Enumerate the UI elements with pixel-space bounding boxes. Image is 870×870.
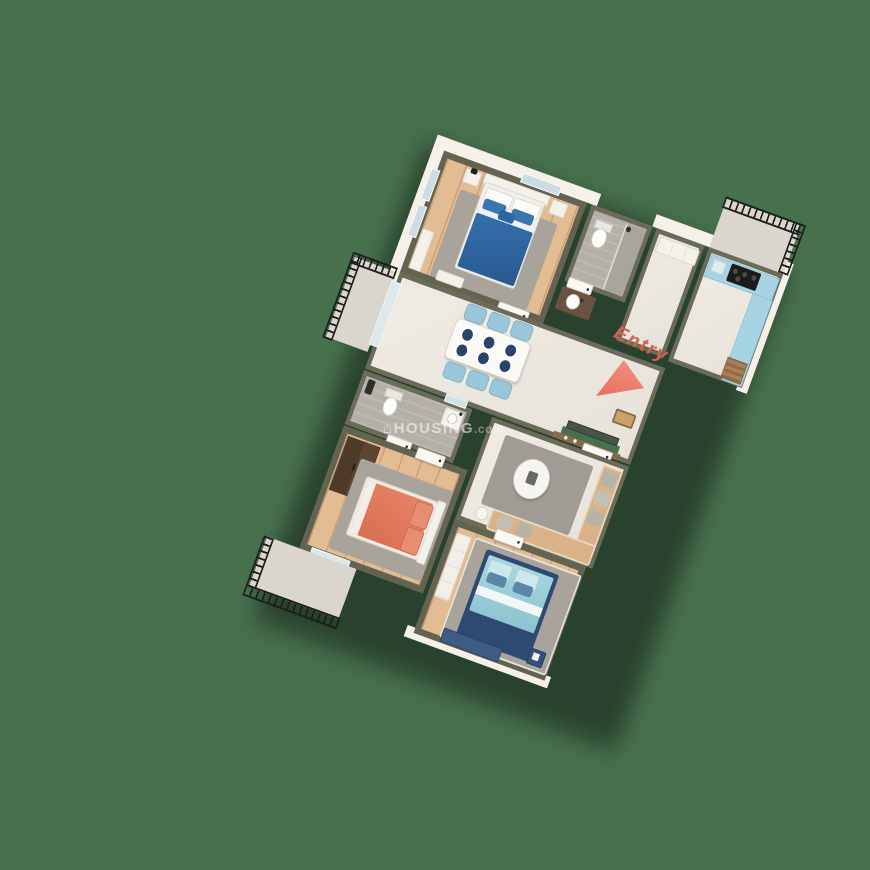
watermark: ⌂HOUSING.com [383, 420, 504, 437]
doormat [612, 408, 637, 429]
white-wardrobe [654, 236, 700, 266]
floor-plan-scene: ⌂HOUSING.com Entry [0, 0, 870, 870]
watermark-brand: HOUSING [394, 420, 475, 437]
watermark-tld: .com [474, 422, 504, 436]
house-icon: ⌂ [383, 420, 394, 437]
shower-set [364, 379, 376, 395]
nightstand [548, 199, 568, 218]
